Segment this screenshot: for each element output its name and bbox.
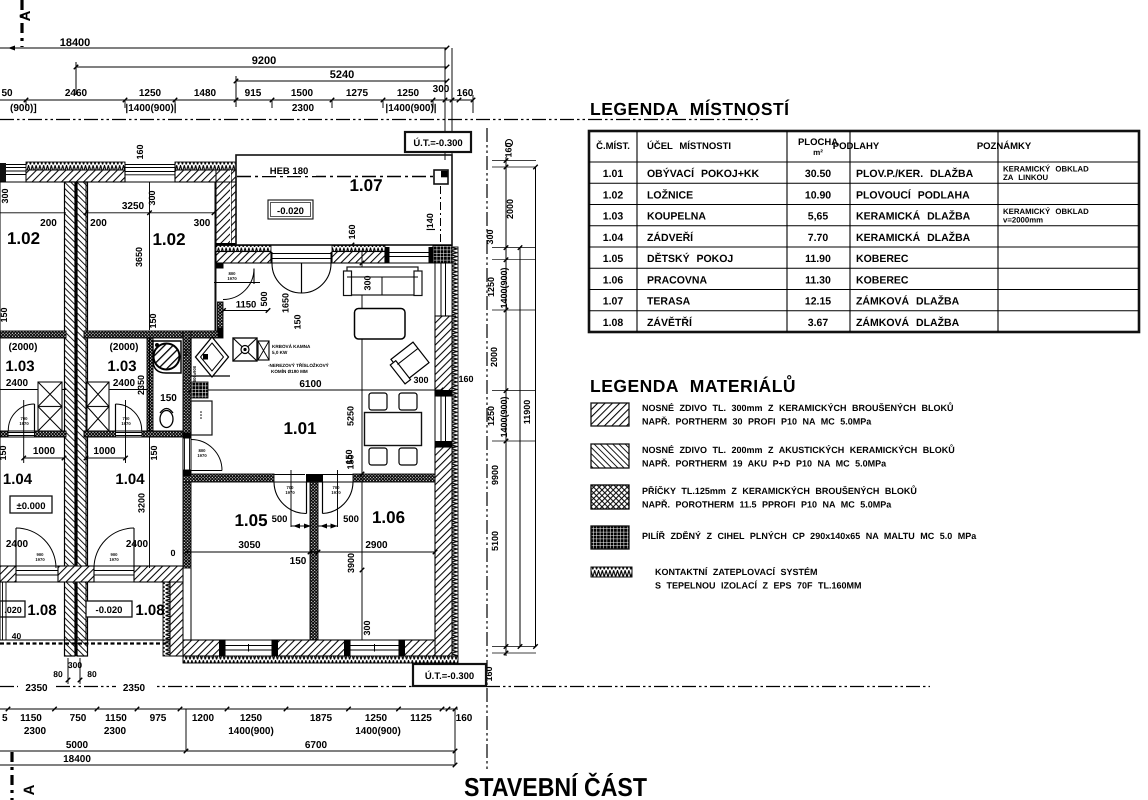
svg-text:3650: 3650 bbox=[134, 247, 144, 267]
svg-text:1.08: 1.08 bbox=[603, 317, 624, 329]
svg-text:200: 200 bbox=[40, 218, 57, 229]
svg-text:1.03: 1.03 bbox=[5, 358, 34, 375]
svg-text:KRBOVÁ KAMNA: KRBOVÁ KAMNA bbox=[272, 343, 311, 349]
svg-text:NAPŘ. PORTHERM 30 PROFI P10 NA: NAPŘ. PORTHERM 30 PROFI P10 NA MC 5.0MPa bbox=[642, 416, 872, 427]
svg-text:9200: 9200 bbox=[252, 55, 276, 67]
svg-text:600: 600 bbox=[184, 348, 189, 356]
svg-text:11900: 11900 bbox=[522, 400, 532, 425]
svg-text:v=2000mm: v=2000mm bbox=[1003, 216, 1043, 225]
svg-text:5: 5 bbox=[2, 713, 8, 724]
svg-text:PRACOVNA: PRACOVNA bbox=[647, 274, 708, 286]
svg-text:.020: .020 bbox=[4, 605, 22, 615]
svg-text:KOUPELNA: KOUPELNA bbox=[647, 211, 706, 223]
svg-text:ZÁVĚTŘÍ: ZÁVĚTŘÍ bbox=[647, 316, 693, 329]
svg-text:NAPŘ. PORTHERM 19 AKU P+D P10: NAPŘ. PORTHERM 19 AKU P+D P10 NA MC 5.0M… bbox=[642, 458, 887, 469]
svg-text:1.08: 1.08 bbox=[135, 602, 164, 619]
svg-text:PILÍŘ ZDĚNÝ Z CIHEL PLNÝCH CP: PILÍŘ ZDĚNÝ Z CIHEL PLNÝCH CP 290x140x65… bbox=[642, 530, 977, 541]
svg-text:ZÁDVEŘÍ: ZÁDVEŘÍ bbox=[647, 231, 694, 244]
svg-text:2000: 2000 bbox=[505, 199, 515, 219]
svg-text:1.06: 1.06 bbox=[603, 274, 624, 286]
svg-text:5250: 5250 bbox=[346, 406, 356, 426]
svg-text:1200: 1200 bbox=[192, 713, 215, 724]
svg-text:12.15: 12.15 bbox=[805, 296, 831, 308]
svg-text:975: 975 bbox=[150, 713, 167, 724]
svg-text:LEGENDA MÍSTNOSTÍ: LEGENDA MÍSTNOSTÍ bbox=[590, 99, 790, 119]
svg-text:5,0 KW: 5,0 KW bbox=[272, 350, 288, 355]
svg-text:1400(900): 1400(900) bbox=[499, 267, 509, 308]
svg-text:11.90: 11.90 bbox=[805, 253, 831, 265]
svg-text:1.06: 1.06 bbox=[372, 508, 405, 527]
svg-text:600x900: 600x900 bbox=[192, 365, 197, 382]
svg-text:5240: 5240 bbox=[330, 69, 354, 81]
svg-text:300: 300 bbox=[485, 229, 495, 244]
svg-text:5000: 5000 bbox=[66, 740, 89, 751]
svg-text:3.67: 3.67 bbox=[808, 317, 829, 329]
svg-text:1.08: 1.08 bbox=[27, 602, 56, 619]
svg-text:-0.020: -0.020 bbox=[96, 605, 123, 616]
svg-text:1970: 1970 bbox=[121, 421, 131, 426]
svg-text:DĚTSKÝ POKOJ: DĚTSKÝ POKOJ bbox=[647, 252, 733, 265]
svg-text:2400: 2400 bbox=[6, 378, 29, 389]
svg-text:10.90: 10.90 bbox=[805, 189, 831, 201]
svg-text:2400: 2400 bbox=[113, 378, 136, 389]
svg-text:NOSNÉ ZDIVO TL. 300mm Z KERAMI: NOSNÉ ZDIVO TL. 300mm Z KERAMICKÝCH BROU… bbox=[642, 402, 954, 413]
svg-text:A: A bbox=[17, 10, 34, 21]
svg-text:2350: 2350 bbox=[136, 375, 146, 395]
svg-text:1.02: 1.02 bbox=[152, 230, 185, 249]
svg-text:500: 500 bbox=[343, 514, 359, 525]
svg-text:LOŽNICE: LOŽNICE bbox=[647, 188, 693, 201]
svg-text:1875: 1875 bbox=[310, 713, 333, 724]
svg-text:2460: 2460 bbox=[65, 88, 88, 99]
svg-text:1250: 1250 bbox=[486, 406, 496, 426]
svg-text:1970: 1970 bbox=[285, 490, 295, 495]
svg-text:PLOV.P./KER. DLAŽBA: PLOV.P./KER. DLAŽBA bbox=[856, 167, 974, 180]
svg-text:LEGENDA MATERIÁLŮ: LEGENDA MATERIÁLŮ bbox=[590, 375, 796, 396]
svg-text:TERASA: TERASA bbox=[647, 296, 691, 308]
svg-text:1250: 1250 bbox=[240, 713, 263, 724]
svg-text:1250: 1250 bbox=[139, 88, 162, 99]
svg-text:150: 150 bbox=[0, 445, 8, 460]
svg-text:80: 80 bbox=[53, 669, 63, 679]
svg-text:Č.MÍST.: Č.MÍST. bbox=[596, 140, 630, 152]
svg-text:6100: 6100 bbox=[299, 379, 322, 390]
svg-text:-0.020: -0.020 bbox=[277, 206, 304, 217]
svg-text:1.05: 1.05 bbox=[603, 253, 624, 265]
svg-text:(2000): (2000) bbox=[110, 342, 139, 353]
svg-text:1250: 1250 bbox=[397, 88, 420, 99]
svg-text:-NEREZOVÝ TŘÍSLOŽKOVÝ: -NEREZOVÝ TŘÍSLOŽKOVÝ bbox=[268, 362, 329, 368]
svg-text:1.02: 1.02 bbox=[603, 189, 624, 201]
svg-text:150: 150 bbox=[0, 307, 9, 322]
svg-text:1150: 1150 bbox=[20, 713, 42, 724]
svg-text:PLOVOUCÍ PODLAHA: PLOVOUCÍ PODLAHA bbox=[856, 188, 970, 201]
svg-text:1.03: 1.03 bbox=[107, 358, 136, 375]
svg-text:POZNÁMKY: POZNÁMKY bbox=[977, 140, 1032, 152]
svg-text:2400: 2400 bbox=[6, 539, 29, 550]
svg-text:160: 160 bbox=[456, 713, 473, 724]
svg-text:150: 150 bbox=[148, 313, 158, 328]
svg-text:160: 160 bbox=[457, 88, 474, 99]
svg-text:500: 500 bbox=[272, 514, 288, 525]
svg-text:300: 300 bbox=[147, 190, 157, 205]
svg-text:A: A bbox=[21, 784, 38, 795]
svg-text:1400(900): 1400(900) bbox=[355, 726, 401, 737]
svg-text:2300: 2300 bbox=[292, 103, 315, 114]
svg-text:2350: 2350 bbox=[123, 683, 146, 694]
svg-text:S TEPELNOU IZOLACÍ Z EPS 70F T: S TEPELNOU IZOLACÍ Z EPS 70F TL.160MM bbox=[655, 581, 862, 591]
svg-text:KOBEREC: KOBEREC bbox=[856, 274, 909, 286]
svg-text:2900: 2900 bbox=[365, 540, 388, 551]
svg-text:300: 300 bbox=[433, 84, 450, 95]
svg-text:NOSNÉ ZDIVO TL. 200mm Z AKUSTI: NOSNÉ ZDIVO TL. 200mm Z AKUSTICKÝCH KERA… bbox=[642, 444, 955, 455]
svg-text:1.07: 1.07 bbox=[603, 296, 624, 308]
svg-text:1.07: 1.07 bbox=[349, 176, 382, 195]
svg-text:2300: 2300 bbox=[24, 726, 47, 737]
svg-text:915: 915 bbox=[245, 88, 262, 99]
svg-text:OBÝVACÍ POKOJ+KK: OBÝVACÍ POKOJ+KK bbox=[647, 167, 759, 180]
svg-text:150: 150 bbox=[149, 445, 159, 460]
svg-text:2000: 2000 bbox=[489, 347, 499, 367]
svg-text:1480: 1480 bbox=[194, 88, 217, 99]
svg-text:9900: 9900 bbox=[490, 465, 500, 485]
svg-text:2300: 2300 bbox=[104, 726, 127, 737]
svg-text:1.03: 1.03 bbox=[603, 211, 624, 223]
svg-text:1.01: 1.01 bbox=[603, 168, 624, 180]
svg-text:18400: 18400 bbox=[63, 754, 91, 765]
svg-text:300: 300 bbox=[363, 275, 373, 290]
svg-text:ZÁMKOVÁ DLAŽBA: ZÁMKOVÁ DLAŽBA bbox=[856, 316, 960, 329]
svg-text:m²: m² bbox=[813, 148, 823, 157]
svg-text:2400: 2400 bbox=[126, 539, 149, 550]
svg-text:0: 0 bbox=[170, 548, 175, 558]
svg-text:1250: 1250 bbox=[486, 277, 496, 297]
svg-text:3250: 3250 bbox=[122, 201, 145, 212]
svg-text:1275: 1275 bbox=[346, 88, 369, 99]
svg-text:1250: 1250 bbox=[365, 713, 388, 724]
svg-text:ZÁMKOVÁ DLAŽBA: ZÁMKOVÁ DLAŽBA bbox=[856, 295, 960, 308]
svg-text:1.01: 1.01 bbox=[283, 419, 316, 438]
svg-text:±0.000: ±0.000 bbox=[17, 501, 46, 512]
svg-text:2350: 2350 bbox=[25, 683, 48, 694]
svg-text:150: 150 bbox=[160, 393, 177, 404]
svg-text:HEB 180: HEB 180 bbox=[270, 166, 309, 177]
svg-text:3900: 3900 bbox=[346, 553, 356, 573]
svg-text:1400(900): 1400(900) bbox=[499, 396, 509, 437]
svg-text:1970: 1970 bbox=[19, 421, 29, 426]
svg-text:3200: 3200 bbox=[137, 493, 147, 513]
svg-text:160: 160 bbox=[458, 374, 473, 384]
svg-text:ÚČEL MÍSTNOSTI: ÚČEL MÍSTNOSTI bbox=[647, 140, 731, 152]
svg-text:KOBEREC: KOBEREC bbox=[856, 253, 909, 265]
svg-text:1970: 1970 bbox=[35, 557, 45, 562]
svg-text:Ú.T.=-0.300: Ú.T.=-0.300 bbox=[413, 137, 462, 149]
svg-text:1.05: 1.05 bbox=[234, 511, 267, 530]
svg-text:1150: 1150 bbox=[236, 300, 257, 311]
svg-text:150: 150 bbox=[290, 556, 307, 567]
svg-text:1000: 1000 bbox=[33, 446, 56, 457]
svg-text:150: 150 bbox=[344, 449, 354, 464]
svg-text:1.04: 1.04 bbox=[3, 471, 33, 488]
svg-text:750: 750 bbox=[70, 713, 87, 724]
svg-text:300: 300 bbox=[413, 375, 428, 385]
svg-text:1000: 1000 bbox=[93, 446, 116, 457]
svg-text:1400(900): 1400(900) bbox=[228, 726, 274, 737]
svg-text:300: 300 bbox=[68, 660, 82, 670]
svg-text:1970: 1970 bbox=[109, 557, 119, 562]
svg-text:300: 300 bbox=[194, 218, 211, 229]
svg-text:6700: 6700 bbox=[305, 740, 328, 751]
svg-text:STAVEBNÍ ČÁST: STAVEBNÍ ČÁST bbox=[464, 772, 647, 800]
svg-text:1.04: 1.04 bbox=[115, 471, 145, 488]
svg-text:80: 80 bbox=[87, 669, 97, 679]
svg-text:5,65: 5,65 bbox=[808, 211, 829, 223]
svg-text:(2000): (2000) bbox=[9, 342, 38, 353]
svg-text:5100: 5100 bbox=[490, 531, 500, 551]
svg-text:KERAMICKÁ DLAŽBA: KERAMICKÁ DLAŽBA bbox=[856, 210, 971, 223]
svg-text:KERAMICKÁ DLAŽBA: KERAMICKÁ DLAŽBA bbox=[856, 231, 971, 244]
svg-text:300: 300 bbox=[0, 188, 10, 203]
svg-text:160: 160 bbox=[504, 142, 514, 157]
svg-text:NAPŘ. POROTHERM 11.5 PPROFI P1: NAPŘ. POROTHERM 11.5 PPROFI P10 NA MC 5.… bbox=[642, 499, 892, 510]
svg-text:150: 150 bbox=[293, 314, 303, 329]
svg-text:500: 500 bbox=[259, 291, 269, 306]
svg-text:Ú.T.=-0.300: Ú.T.=-0.300 bbox=[425, 670, 474, 682]
svg-text:1970: 1970 bbox=[331, 490, 341, 495]
svg-text:1650: 1650 bbox=[281, 293, 291, 313]
svg-text:30.50: 30.50 bbox=[805, 168, 831, 180]
svg-text:1125: 1125 bbox=[410, 713, 432, 724]
svg-text:KONTAKTNÍ ZATEPLOVACÍ SYSTÉM: KONTAKTNÍ ZATEPLOVACÍ SYSTÉM bbox=[655, 567, 818, 577]
svg-text:KOMÍN Ø180 MM: KOMÍN Ø180 MM bbox=[271, 368, 308, 374]
svg-text:50: 50 bbox=[1, 88, 13, 99]
svg-text:11.30: 11.30 bbox=[805, 274, 831, 286]
svg-text:1970: 1970 bbox=[197, 453, 207, 458]
svg-text:3050: 3050 bbox=[238, 540, 261, 551]
svg-text:160: 160 bbox=[135, 144, 145, 159]
svg-text:1.04: 1.04 bbox=[603, 232, 624, 244]
svg-text:1150: 1150 bbox=[105, 713, 127, 724]
svg-text:|1400(900)|: |1400(900)| bbox=[385, 103, 436, 114]
svg-text:300: 300 bbox=[362, 620, 372, 635]
svg-text:|140: |140 bbox=[425, 213, 435, 231]
svg-text:7.70: 7.70 bbox=[808, 232, 829, 244]
svg-text:1.02: 1.02 bbox=[7, 229, 40, 248]
svg-text:1500: 1500 bbox=[291, 88, 314, 99]
svg-text:ZA LINKOU: ZA LINKOU bbox=[1003, 173, 1049, 182]
svg-text:160: 160 bbox=[347, 224, 357, 239]
svg-text:1970: 1970 bbox=[227, 276, 237, 281]
svg-text:(900)]: (900)] bbox=[10, 103, 37, 114]
svg-text:PŘÍČKY TL.125mm Z KERAMICKÝCH: PŘÍČKY TL.125mm Z KERAMICKÝCH BROUŠENÝCH… bbox=[642, 485, 917, 496]
svg-text:18400: 18400 bbox=[60, 37, 91, 49]
svg-text:|1400(900)|: |1400(900)| bbox=[125, 103, 176, 114]
svg-text:PODLAHY: PODLAHY bbox=[833, 141, 880, 152]
svg-text:200: 200 bbox=[90, 218, 107, 229]
